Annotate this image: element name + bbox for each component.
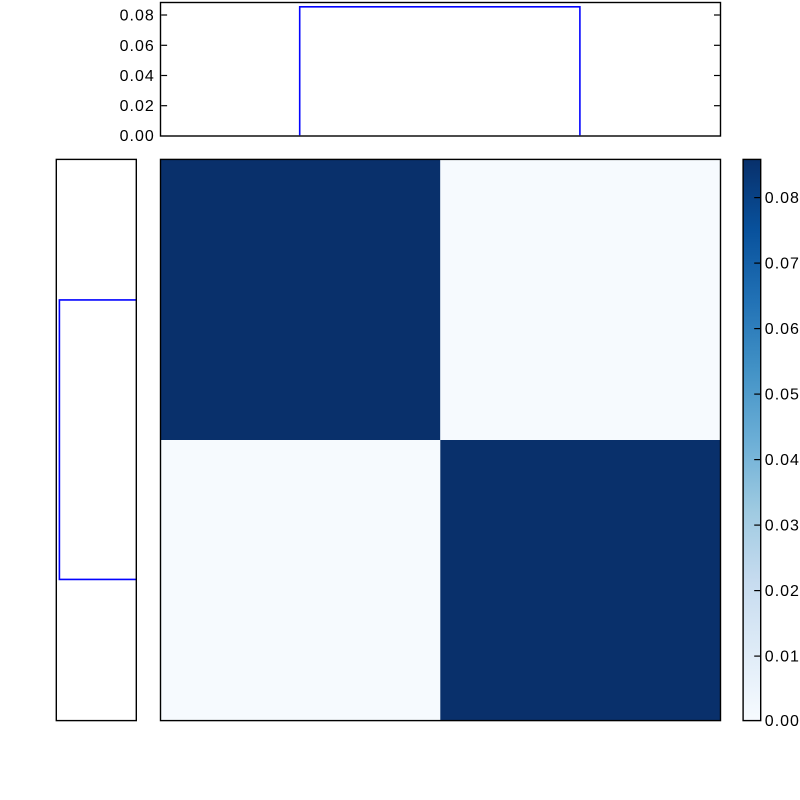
- svg-text:0.01: 0.01: [765, 649, 800, 666]
- svg-text:0.08: 0.08: [120, 8, 155, 25]
- svg-text:0.02: 0.02: [765, 583, 800, 600]
- svg-text:0.07: 0.07: [765, 256, 800, 273]
- svg-text:0.08: 0.08: [765, 190, 800, 207]
- svg-text:0.04: 0.04: [765, 452, 800, 469]
- svg-text:0.03: 0.03: [765, 518, 800, 535]
- svg-text:0.00: 0.00: [120, 128, 155, 145]
- svg-text:0.00: 0.00: [765, 713, 800, 730]
- svg-text:0.05: 0.05: [765, 387, 800, 404]
- svg-text:0.04: 0.04: [120, 68, 155, 85]
- svg-text:0.06: 0.06: [120, 38, 155, 55]
- svg-text:0.06: 0.06: [765, 321, 800, 338]
- svg-text:0.02: 0.02: [120, 98, 155, 115]
